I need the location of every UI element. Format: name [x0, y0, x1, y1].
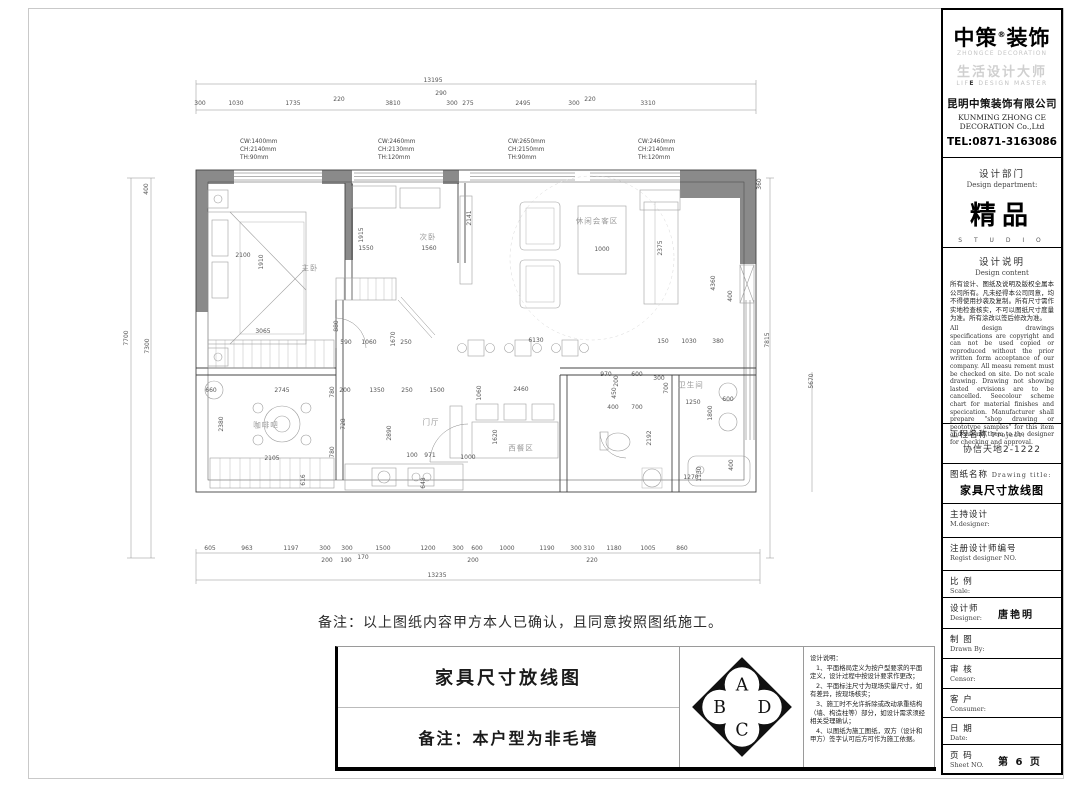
titleblock-drawing-section: 图纸名称 Drawing title: 家具尺寸放线图	[943, 464, 1061, 504]
drawing-title-box: 家具尺寸放线图 备注：本户型为非毛墙	[335, 646, 680, 768]
field-row-m-designer: 主持设计M.designer:	[943, 504, 1061, 538]
titleblock-logo-section: 中策®装饰 ZHONGCE DECORATION 生活设计大师 LIFE DES…	[943, 10, 1061, 158]
field-label-cn: 主持设计	[943, 504, 1061, 520]
field-row-sheet-no: 页 码Sheet NO.第 6 页	[943, 745, 1061, 772]
field-value: 唐艳明	[998, 606, 1034, 621]
drawing-label: 图纸名称 Drawing title:	[943, 464, 1061, 480]
drawing-sheet: 1319529030010301735220381030027524953002…	[0, 0, 1080, 785]
company-name-cn: 昆明中策装饰有限公司	[943, 96, 1061, 111]
orientation-compass-box: A B D C	[679, 646, 804, 768]
titleblock-fields: 主持设计M.designer:注册设计师编号Regist designer NO…	[943, 504, 1061, 773]
company-name-en: KUNMING ZHONG CEDECORATION Co.,Ltd	[943, 113, 1061, 131]
brand-slogan-en: LIFE DESIGN MASTER	[943, 80, 1061, 87]
field-label-en: Scale:	[943, 587, 1061, 595]
field-row-consumer: 客 户Consumer:	[943, 689, 1061, 718]
note-item: 1、平面格局定义为按户型要求的平面定义，设计过程中按设计要求作更改；	[810, 664, 928, 681]
department-label-cn: 设计部门	[943, 166, 1061, 180]
field-row-date: 日 期Date:	[943, 718, 1061, 745]
field-label-cn: 制 图	[943, 629, 1061, 645]
field-row-drawn-by: 制 图Drawn By:	[943, 629, 1061, 659]
drawing-title-text: 家具尺寸放线图	[338, 647, 679, 708]
field-value: 第 6 页	[998, 753, 1042, 768]
notes-list: 1、平面格局定义为按户型要求的平面定义，设计过程中按设计要求作更改；2、平面标注…	[810, 664, 928, 744]
title-block: 中策®装饰 ZHONGCE DECORATION 生活设计大师 LIFE DES…	[941, 8, 1063, 775]
field-label-cn: 审 核	[943, 659, 1061, 675]
field-row-designer: 设计师Designer:唐艳明	[943, 598, 1061, 629]
drawing-value: 家具尺寸放线图	[943, 482, 1061, 498]
compass-letter-d: D	[757, 698, 771, 718]
field-label-en: Date:	[943, 734, 1061, 742]
bottom-thick-rule	[335, 767, 936, 771]
field-row-censor: 审 核Censor:	[943, 659, 1061, 689]
field-label-cn: 比 例	[943, 571, 1061, 587]
confirmation-note: 备注：以上图纸内容甲方本人已确认，且同意按照图纸施工。	[318, 612, 723, 632]
construction-notes-box: 设计说明： 1、平面格局定义为按户型要求的平面定义，设计过程中按设计要求作更改；…	[803, 646, 935, 768]
design-notes-cn: 所有设计、图纸及说明及版权全属本公司所有。凡未经得本公司同意，均不得使用抄袭及复…	[943, 277, 1061, 323]
brand-slogan-cn: 生活设计大师	[943, 61, 1061, 80]
note-item: 3、施工时不允许拆除或改动承重结构（墙、构造柱等）部分，如设计需求须经相关受理确…	[810, 700, 928, 726]
field-label-en: Censor:	[943, 675, 1061, 683]
note-item: 2、平面标注尺寸为现场实量尺寸，如有差异，按现场核实；	[810, 682, 928, 699]
note-item: 4、以图纸为施工图纸，双方（设计和甲方）签字认可后方可作为施工依据。	[810, 727, 928, 744]
bottom-band: 家具尺寸放线图 备注：本户型为非毛墙 A B D C 设计说明： 1、平面格局定…	[335, 646, 935, 768]
titleblock-department-section: 设计部门 Design department: 精品 S T U D I O	[943, 158, 1061, 248]
compass-letter-b: B	[713, 698, 726, 718]
department-value-sub: S T U D I O	[943, 237, 1061, 244]
field-label-en: Drawn By:	[943, 645, 1061, 653]
field-label-en: M.designer:	[943, 520, 1061, 528]
compass-letter-c: C	[735, 721, 748, 741]
design-notes-label-en: Design content	[943, 269, 1061, 277]
field-row-regist-no: 注册设计师编号Regist designer NO.	[943, 538, 1061, 571]
titleblock-design-notes-section: 设计说明 Design content 所有设计、图纸及说明及版权全属本公司所有…	[943, 248, 1061, 424]
design-notes-label-cn: 设计说明	[943, 254, 1061, 268]
field-label-cn: 注册设计师编号	[943, 538, 1061, 554]
field-label-cn: 日 期	[943, 718, 1061, 734]
company-phone: TEL:0871-3163086	[943, 136, 1061, 148]
field-label-en: Regist designer NO.	[943, 554, 1061, 562]
department-value: 精品	[943, 195, 1061, 232]
brand-sub-en: ZHONGCE DECORATION	[943, 50, 1061, 57]
project-label: 工程名称 Project:	[943, 424, 1061, 440]
compass-letter-a: A	[734, 676, 748, 696]
project-value: 协信天地2-1222	[943, 442, 1061, 455]
compass-diamond-icon: A B D C	[686, 651, 798, 763]
brand-logo: 中策®装饰	[943, 24, 1061, 49]
department-label-en: Design department:	[943, 181, 1061, 189]
field-row-scale: 比 例Scale:	[943, 571, 1061, 598]
field-label-cn: 客 户	[943, 689, 1061, 705]
titleblock-project-section: 工程名称 Project: 协信天地2-1222	[943, 424, 1061, 464]
notes-title: 设计说明：	[810, 654, 928, 663]
drawing-remark-text: 备注：本户型为非毛墙	[338, 708, 679, 768]
field-label-en: Consumer:	[943, 705, 1061, 713]
